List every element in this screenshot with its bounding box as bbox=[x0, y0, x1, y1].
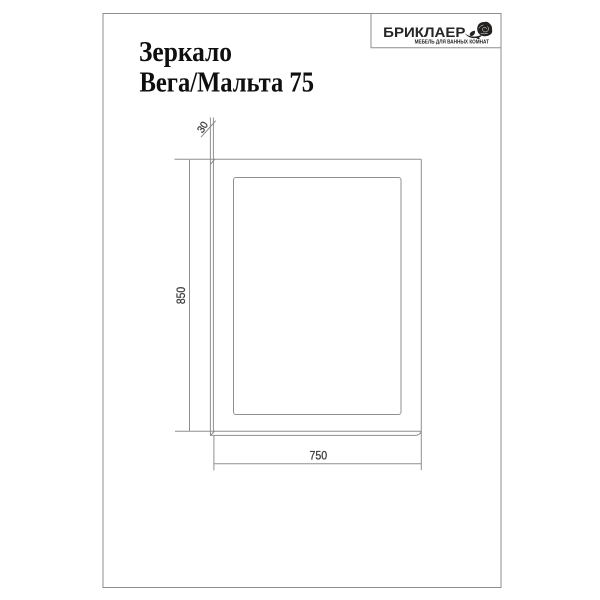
svg-text:850: 850 bbox=[175, 286, 188, 304]
svg-text:БРИКЛАЕР: БРИКЛАЕР bbox=[383, 25, 465, 40]
svg-text:МЕБЕЛЬ ДЛЯ ВАННЫХ КОМНАТ: МЕБЕЛЬ ДЛЯ ВАННЫХ КОМНАТ bbox=[415, 39, 490, 45]
svg-text:Вега/Мальта 75: Вега/Мальта 75 bbox=[140, 68, 315, 99]
svg-text:Зеркало: Зеркало bbox=[139, 37, 232, 68]
svg-text:30: 30 bbox=[195, 119, 211, 135]
svg-text:750: 750 bbox=[310, 450, 328, 463]
